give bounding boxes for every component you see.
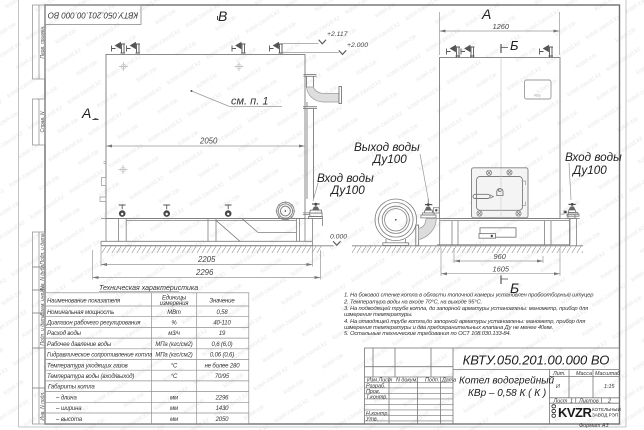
svg-text:Значение: Значение — [209, 299, 235, 305]
svg-text:КВр – 0,58 К ( К ): КВр – 0,58 К ( К ) — [468, 388, 546, 399]
svg-text:1260: 1260 — [493, 22, 510, 31]
svg-text:1: 1 — [570, 398, 573, 404]
svg-text:Б: Б — [510, 38, 519, 53]
svg-text:– длина: – длина — [55, 395, 77, 401]
svg-text:Ду100: Ду100 — [329, 184, 365, 197]
svg-text:В: В — [218, 8, 227, 24]
svg-text:Лит.: Лит. — [552, 371, 566, 377]
svg-text:0.000: 0.000 — [330, 234, 347, 241]
svg-text:Подп.: Подп. — [425, 378, 439, 384]
svg-text:МВт: МВт — [167, 310, 181, 316]
svg-text:Подп. и дата: Подп. и дата — [40, 233, 46, 265]
svg-text:0,06 (0,6): 0,06 (0,6) — [210, 353, 234, 359]
svg-text:м3/ч: м3/ч — [168, 331, 180, 337]
svg-text:KVZR: KVZR — [558, 405, 593, 420]
svg-text:Утв.: Утв. — [365, 416, 378, 422]
svg-text:Ду100: Ду100 — [371, 153, 407, 166]
svg-text:ЗАВОД РЭП: ЗАВОД РЭП — [592, 413, 618, 418]
svg-text:КВТУ.050.201.00.000 ВО: КВТУ.050.201.00.000 ВО — [463, 353, 610, 368]
svg-text:Номинальная мощность: Номинальная мощность — [47, 310, 114, 316]
svg-text:0,6 (6,0): 0,6 (6,0) — [212, 342, 233, 348]
svg-text:А: А — [81, 105, 91, 121]
svg-text:измерения температуры.: измерения температуры. — [344, 312, 413, 318]
svg-text:см. п. 1: см. п. 1 — [231, 96, 268, 108]
svg-text:Вход воды: Вход воды — [565, 151, 622, 164]
svg-text:Наименование показателя: Наименование показателя — [47, 299, 121, 305]
svg-text:мм: мм — [170, 406, 178, 412]
svg-text:Габариты котла: Габариты котла — [48, 385, 95, 391]
svg-text:Лист: Лист — [553, 398, 568, 404]
svg-text:МПа (кгс/см2): МПа (кгс/см2) — [155, 353, 192, 359]
svg-text:N докум.: N докум. — [396, 378, 418, 384]
svg-text:+2.000: +2.000 — [347, 42, 368, 49]
svg-text:Диапазон рабочего регулировани: Диапазон рабочего регулирования — [46, 321, 141, 327]
svg-text:Рабочее давление воды: Рабочее давление воды — [47, 342, 112, 348]
svg-text:2296: 2296 — [215, 395, 230, 401]
svg-text:2296: 2296 — [195, 268, 214, 277]
svg-text:Т.контр.: Т.контр. — [366, 394, 388, 400]
svg-text:Техническая характеристика: Техническая характеристика — [99, 285, 198, 292]
svg-text:19: 19 — [219, 331, 226, 337]
svg-text:Листов: Листов — [578, 398, 599, 404]
svg-text:КОТЕЛЬНЫЙ: КОТЕЛЬНЫЙ — [592, 405, 621, 412]
svg-text:Масса: Масса — [576, 371, 592, 377]
svg-text:70/95: 70/95 — [215, 374, 230, 380]
svg-text:°С: °С — [171, 363, 178, 369]
svg-text:1. На боковой стенке котла в: 1. На боковой стенке котла в области топ… — [344, 292, 594, 299]
svg-text:2: 2 — [607, 398, 611, 404]
svg-text:Гидравлическое сопротивление к: Гидравлическое сопротивление котла — [47, 353, 153, 359]
svg-text:мм: мм — [170, 417, 178, 423]
svg-text:%: % — [171, 321, 177, 327]
svg-text:1:15: 1:15 — [604, 384, 615, 390]
svg-text:КВр: КВр — [534, 94, 540, 98]
svg-text:Масштаб: Масштаб — [595, 371, 621, 377]
svg-text:А: А — [481, 6, 491, 22]
svg-text:2050: 2050 — [199, 137, 218, 146]
svg-text:Ду100: Ду100 — [571, 164, 607, 177]
svg-text:измерения: измерения — [160, 301, 190, 307]
svg-text:Дата: Дата — [441, 378, 456, 384]
svg-text:2205: 2205 — [197, 255, 216, 264]
svg-text:2. Температура воды на входе: 2. Температура воды на входе 70°С, на вы… — [343, 300, 482, 306]
svg-text:1430: 1430 — [216, 406, 230, 412]
svg-text:Справ. N: Справ. N — [40, 111, 46, 132]
svg-text:0,58: 0,58 — [216, 310, 228, 316]
svg-text:МПа (кгс/см2): МПа (кгс/см2) — [155, 342, 192, 348]
svg-text:Температура уходящих газов: Температура уходящих газов — [47, 363, 128, 369]
svg-text:Перв. примен.: Перв. примен. — [40, 25, 46, 58]
svg-text:5. Остальные технические треб: 5. Остальные технические требования по О… — [344, 331, 511, 337]
svg-text:°С: °С — [171, 374, 178, 380]
svg-text:– ширина: – ширина — [55, 406, 82, 412]
svg-text:960: 960 — [494, 252, 507, 261]
svg-text:+2.117: +2.117 — [327, 31, 348, 38]
svg-text:Расход воды: Расход воды — [47, 331, 82, 337]
svg-text:мм: мм — [170, 395, 178, 401]
svg-text:40-110: 40-110 — [213, 321, 231, 327]
svg-text:Котел водогрейный: Котел водогрейный — [459, 376, 555, 387]
svg-text:не более 280: не более 280 — [205, 363, 241, 369]
svg-text:Температура воды (вход/выход): Температура воды (вход/выход) — [47, 374, 134, 380]
svg-text:КВТУ.050.201.00.000 ВО: КВТУ.050.201.00.000 ВО — [48, 11, 138, 20]
svg-text:Формат А3: Формат А3 — [579, 423, 609, 429]
svg-text:И: И — [556, 384, 560, 390]
svg-text:4. На отводящей трубе котла,д: 4. На отводящей трубе котла,до запорной … — [344, 318, 585, 325]
svg-text:2050: 2050 — [215, 417, 230, 423]
svg-text:1605: 1605 — [493, 264, 510, 273]
svg-text:– высота: – высота — [55, 417, 83, 423]
